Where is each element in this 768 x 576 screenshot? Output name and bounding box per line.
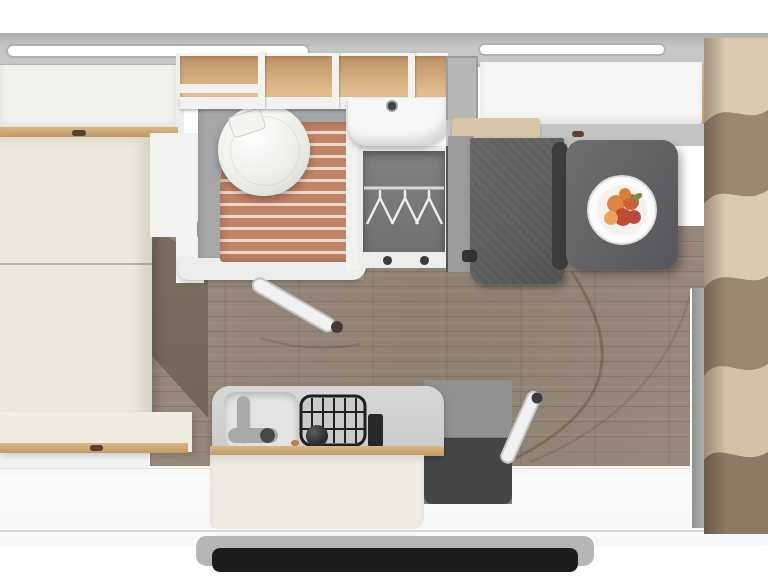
dinette-bench (470, 138, 564, 284)
fruit-plate (586, 174, 658, 246)
double-bed (0, 137, 152, 425)
entry-step (212, 548, 578, 572)
basin-faucet (386, 100, 398, 112)
washbasin (348, 98, 452, 146)
clothes-hangers (362, 182, 446, 248)
kitchen-cabinet-front (210, 455, 424, 529)
cubby-divider (258, 53, 265, 109)
locker-handle (572, 131, 584, 137)
entrance-door (490, 390, 552, 470)
control-panel (368, 414, 383, 447)
mattress-seam (0, 263, 152, 265)
wall-seam (0, 530, 768, 532)
caravan-floorplan (0, 0, 768, 576)
cubby-divider (332, 53, 339, 109)
cabinet-handle (90, 445, 103, 451)
dinette-window (478, 43, 666, 56)
overhead-locker-bed (0, 65, 178, 129)
wardrobe-knob (420, 256, 429, 265)
sink-knob (260, 428, 275, 443)
door-tip (331, 321, 343, 333)
door-tip (532, 393, 543, 404)
fabric-drape (704, 38, 768, 534)
wardrobe-knob (383, 256, 392, 265)
cabinet-handle (72, 130, 86, 136)
hob-pot (306, 425, 328, 447)
bathroom-door (252, 272, 356, 340)
wardrobe-bottom-rail (358, 252, 450, 268)
cubby-shelf-lip (180, 84, 260, 93)
overhead-locker-dinette (480, 62, 702, 124)
bench-foot (462, 250, 477, 262)
